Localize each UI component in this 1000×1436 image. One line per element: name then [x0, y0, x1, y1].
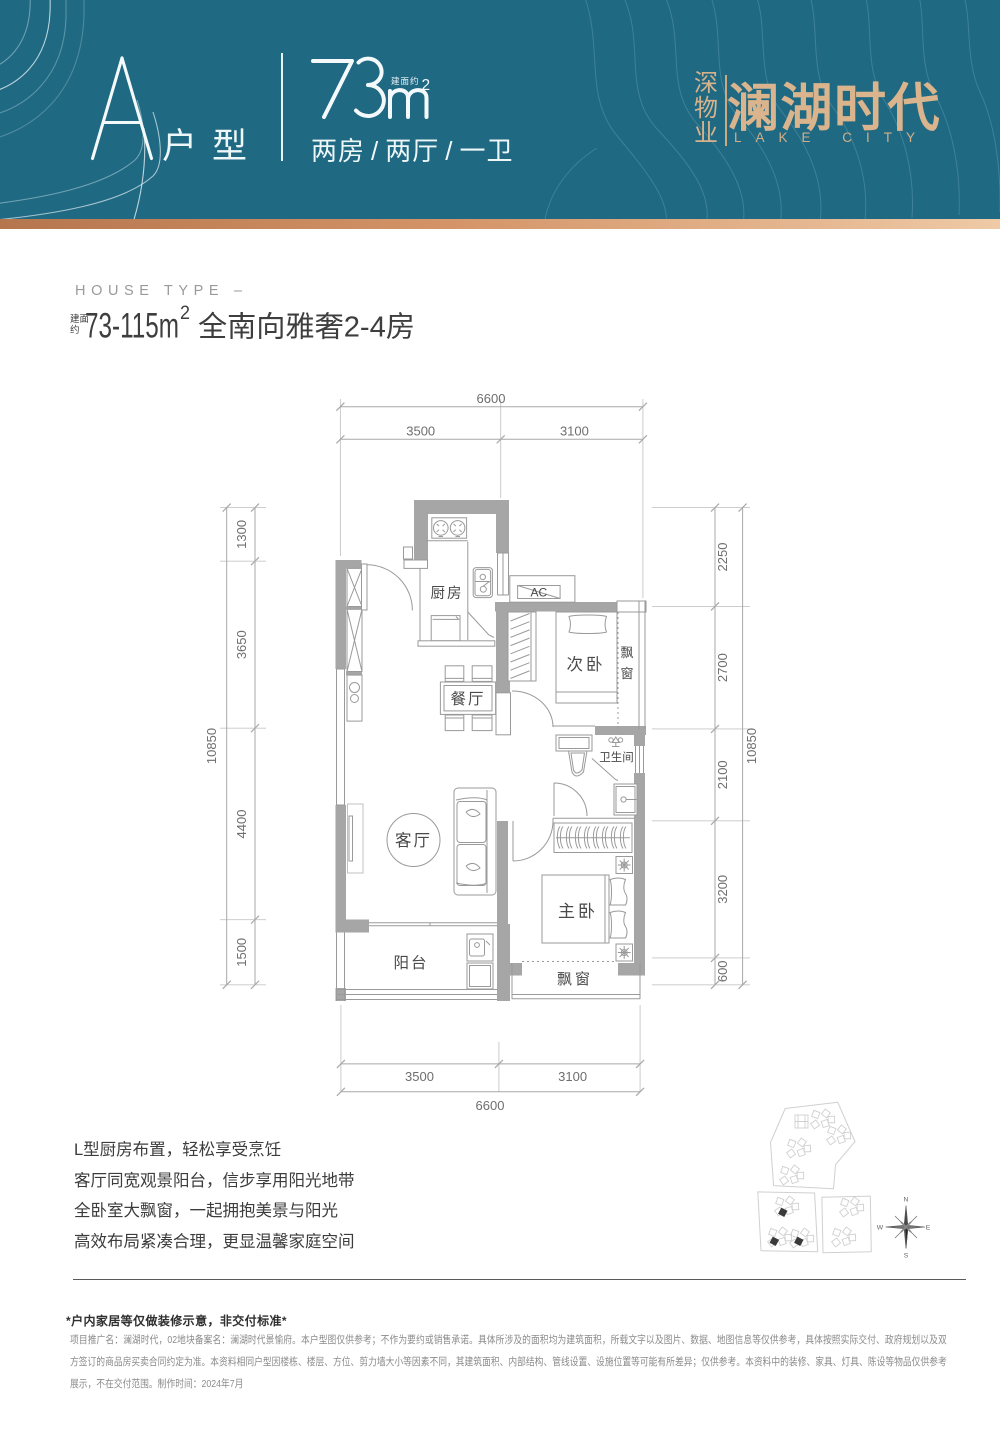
svg-text:2700: 2700 [715, 653, 730, 682]
svg-text:3100: 3100 [560, 424, 589, 439]
svg-text:餐厅: 餐厅 [450, 690, 485, 708]
svg-text:客厅: 客厅 [395, 831, 432, 850]
svg-text:AC: AC [530, 586, 547, 600]
svg-text:1300: 1300 [234, 520, 249, 549]
svg-text:6600: 6600 [477, 391, 506, 406]
svg-text:1500: 1500 [234, 938, 249, 967]
svg-text:4400: 4400 [234, 810, 249, 839]
svg-text:阳台: 阳台 [393, 954, 428, 972]
svg-text:3650: 3650 [234, 630, 249, 659]
svg-text:3200: 3200 [715, 875, 730, 904]
svg-text:主卧: 主卧 [558, 902, 598, 921]
svg-text:E: E [926, 1225, 931, 1232]
svg-text:600: 600 [715, 960, 730, 982]
svg-text:S: S [904, 1253, 909, 1260]
svg-text:2250: 2250 [715, 543, 730, 572]
svg-text:6600: 6600 [476, 1098, 505, 1113]
svg-text:飘窗: 飘窗 [557, 970, 593, 988]
svg-text:2100: 2100 [715, 760, 730, 789]
svg-text:3500: 3500 [406, 424, 435, 439]
svg-text:飘: 飘 [620, 645, 633, 660]
svg-text:次卧: 次卧 [567, 655, 606, 674]
svg-text:3100: 3100 [558, 1069, 587, 1084]
svg-text:卫生间: 卫生间 [599, 750, 634, 764]
svg-text:N: N [904, 1197, 909, 1204]
svg-text:厨房: 厨房 [431, 585, 464, 602]
svg-text:10850: 10850 [744, 728, 759, 764]
svg-text:窗: 窗 [620, 666, 633, 681]
svg-text:W: W [877, 1225, 884, 1232]
svg-text:3500: 3500 [405, 1069, 434, 1084]
svg-text:10850: 10850 [204, 728, 219, 764]
